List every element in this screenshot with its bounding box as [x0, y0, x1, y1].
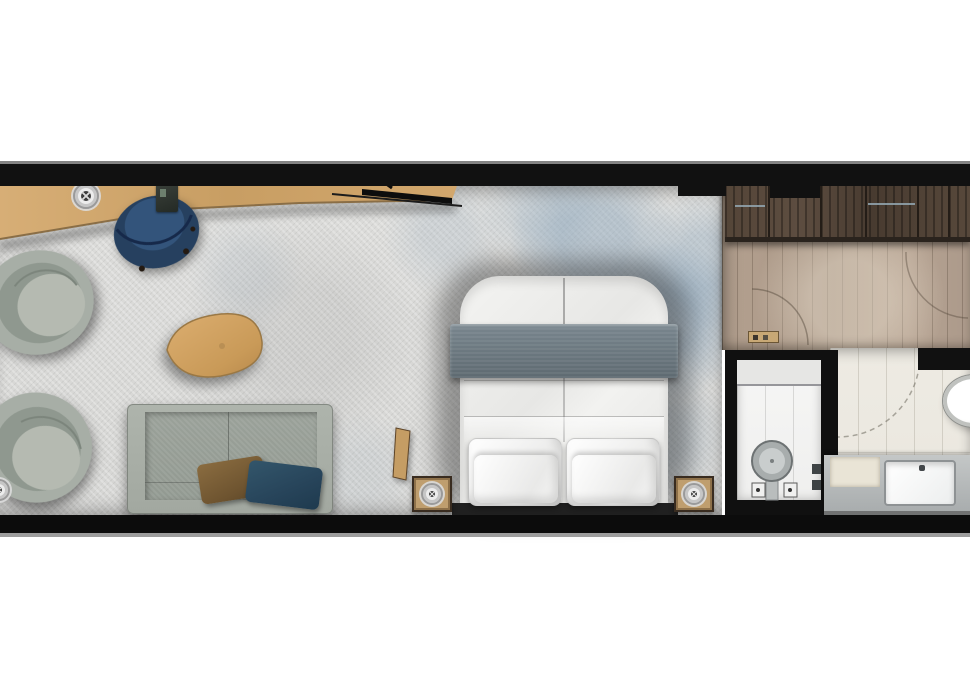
- ceiling-light-symbol: [683, 483, 705, 505]
- toilet-fixture-dot: [788, 488, 792, 492]
- top-wall: [0, 164, 970, 186]
- wall-notch: [770, 186, 820, 198]
- door-arc-entry: [906, 252, 968, 318]
- bed-pillow-left: [468, 438, 562, 506]
- bottom-wall-outline: [0, 533, 970, 537]
- toilet-drain: [770, 459, 774, 463]
- door-arc-wc: [752, 289, 808, 345]
- flush-panel: [812, 480, 821, 490]
- bed-pillow-right-top: [572, 455, 656, 503]
- coffee-table-knot: [219, 343, 225, 349]
- flush-panel: [812, 464, 821, 474]
- armchair-bottom: [0, 382, 102, 513]
- ceiling-light-symbol: [73, 183, 99, 209]
- armchair-top: [0, 237, 106, 368]
- floor-plan-stage: [0, 0, 970, 700]
- wall-notch: [678, 186, 726, 196]
- bed-pillow-left-top: [474, 455, 558, 503]
- toilet-fixture-dot: [756, 488, 760, 492]
- coffee-table: [167, 314, 262, 377]
- ceiling-light-symbol: [421, 483, 443, 505]
- furniture-svg-layer: [0, 0, 970, 700]
- bathroom-top-wall: [918, 348, 970, 370]
- bottom-wall: [0, 515, 970, 533]
- coffee-table-top: [167, 314, 262, 377]
- door-arc-bathroom: [838, 356, 920, 437]
- bed-pillow-right: [566, 438, 660, 506]
- desk-tablet: [156, 184, 178, 212]
- toilet: [752, 441, 821, 500]
- valet-stand: [393, 428, 410, 480]
